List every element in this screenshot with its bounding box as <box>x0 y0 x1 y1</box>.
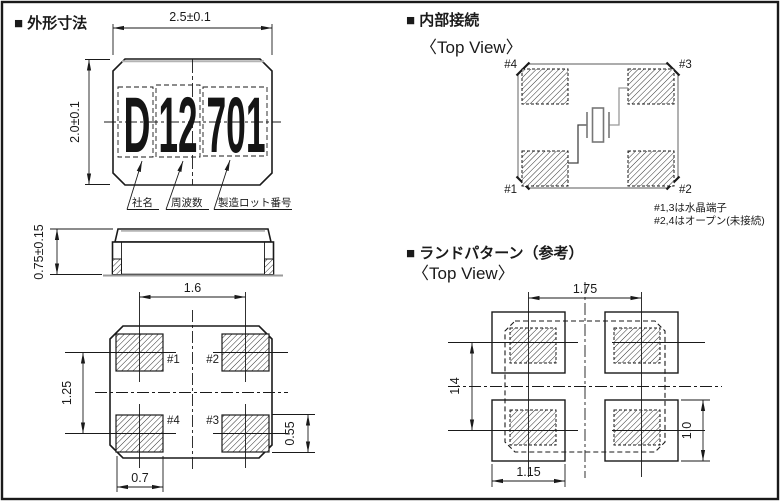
bottom-pad-3-label: #3 <box>206 415 219 427</box>
internal-pad-4 <box>522 69 568 104</box>
marking-text-company: D <box>124 80 151 169</box>
label-lot-number: 製造ロット番号 <box>218 196 292 209</box>
dim-text-height: 2.0±0.1 <box>68 101 82 143</box>
section-title-land: ■ ランドパターン（参考） <box>406 244 583 262</box>
internal-pad-2-label: #2 <box>679 184 692 196</box>
internal-pad-3 <box>628 69 674 104</box>
marking-text-frequency: 12 <box>159 80 198 169</box>
internal-note-2: #2,4はオープン(未接続) <box>654 214 765 227</box>
bottom-pad-4-label: #4 <box>167 415 180 427</box>
dim-text-pad-width: 0.7 <box>131 471 148 485</box>
package-base <box>113 242 274 275</box>
component-pad-bottom-left <box>510 410 556 445</box>
section-title-outline: ■ 外形寸法 <box>14 14 87 32</box>
component-pad-top-right <box>614 328 660 363</box>
bottom-pad-1-label: #1 <box>167 354 180 366</box>
label-frequency: 周波数 <box>171 196 203 209</box>
dim-text-pad-height: 0.55 <box>283 421 297 445</box>
dim-text-width: 2.5±0.1 <box>169 10 211 24</box>
bottom-pad-2-label: #2 <box>206 354 219 366</box>
component-pad-bottom-right <box>614 410 660 445</box>
dim-text-pad-pitch-x: 1.6 <box>184 281 201 295</box>
internal-pad-4-label: #4 <box>504 59 517 71</box>
internal-view-label: 〈Top View〉 <box>420 38 523 57</box>
dim-text-land-pitch-x: 1.75 <box>573 282 597 296</box>
dim-text-thickness: 0.75±0.15 <box>32 224 46 280</box>
side-pad-right <box>265 259 274 275</box>
technical-drawing: ■ 外形寸法 D 12 701 2.5±0.1 2.0±0.1 <box>0 0 780 501</box>
land-view-label: 〈Top View〉 <box>412 264 515 283</box>
internal-note-1: #1,3は水晶端子 <box>654 201 727 214</box>
marking-text-lot: 701 <box>207 80 266 169</box>
component-pad-top-left <box>510 328 556 363</box>
internal-pad-2 <box>628 151 674 186</box>
section-title-internal: ■ 内部接続 <box>406 11 479 29</box>
internal-pad-1 <box>522 151 568 186</box>
datasheet-page: ■ 外形寸法 D 12 701 2.5±0.1 2.0±0.1 <box>0 0 780 501</box>
label-company-name: 社名 <box>132 196 153 209</box>
dim-text-land-height: 1.0 <box>680 422 694 439</box>
internal-pad-1-label: #1 <box>504 184 517 196</box>
dim-text-land-pitch-y: 1.4 <box>448 377 462 394</box>
crystal-element <box>593 108 604 142</box>
dim-text-pad-pitch-y: 1.25 <box>60 381 74 405</box>
dim-text-land-width: 1.15 <box>516 465 540 479</box>
side-pad-left <box>113 259 122 275</box>
internal-pad-3-label: #3 <box>679 59 692 71</box>
